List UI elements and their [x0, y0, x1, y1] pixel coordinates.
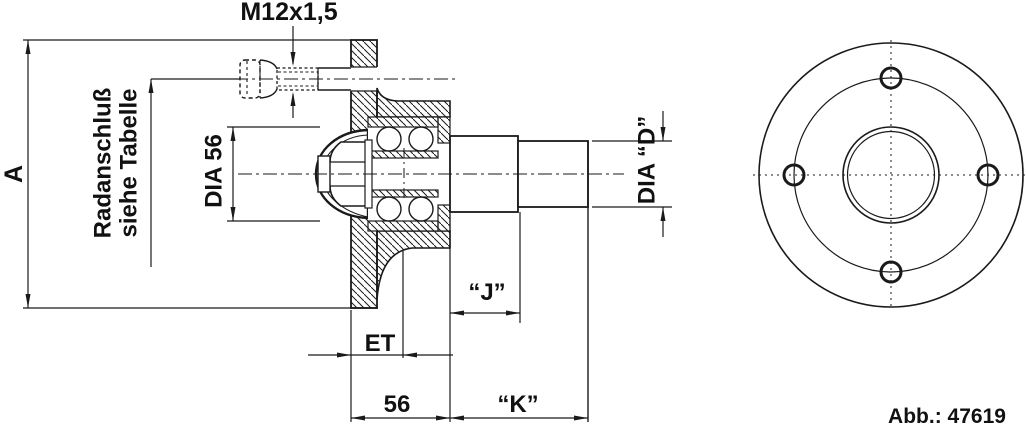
label-dia-56: DIA 56	[201, 134, 228, 208]
front-view	[753, 40, 1026, 310]
bearing-ball	[377, 197, 401, 221]
bolt-seat	[260, 60, 277, 69]
bearing-outer-race-top	[368, 117, 438, 127]
bearing-retainer-top	[438, 117, 450, 143]
hub-drawing-svg: M12x1,5 A Radanschluß siehe Tabelle DIA …	[0, 0, 1026, 430]
label-dim-j: “J”	[468, 279, 505, 306]
dim-j	[450, 212, 520, 323]
label-thread: M12x1,5	[240, 0, 337, 26]
label-dim-a: A	[0, 165, 28, 183]
bearing-ball	[409, 127, 433, 151]
label-dim-et: ET	[365, 330, 396, 357]
label-figure-ref: Abb.: 47619	[888, 405, 1006, 428]
label-dia-d: DIA “D”	[634, 116, 661, 204]
label-dim-56: 56	[384, 391, 411, 418]
label-dim-k: “K”	[497, 391, 538, 418]
label-wheel-mount-2: siehe Tabelle	[116, 89, 143, 238]
label-wheel-mount-1: Radanschluß	[90, 88, 117, 239]
section-view	[234, 40, 624, 308]
technical-drawing-canvas: M12x1,5 A Radanschluß siehe Tabelle DIA …	[0, 0, 1026, 430]
bearing-ball	[409, 197, 433, 221]
bearing-outer-race-bottom	[368, 221, 438, 231]
bearing-retainer-bottom	[438, 205, 450, 231]
bearing-ball	[377, 127, 401, 151]
